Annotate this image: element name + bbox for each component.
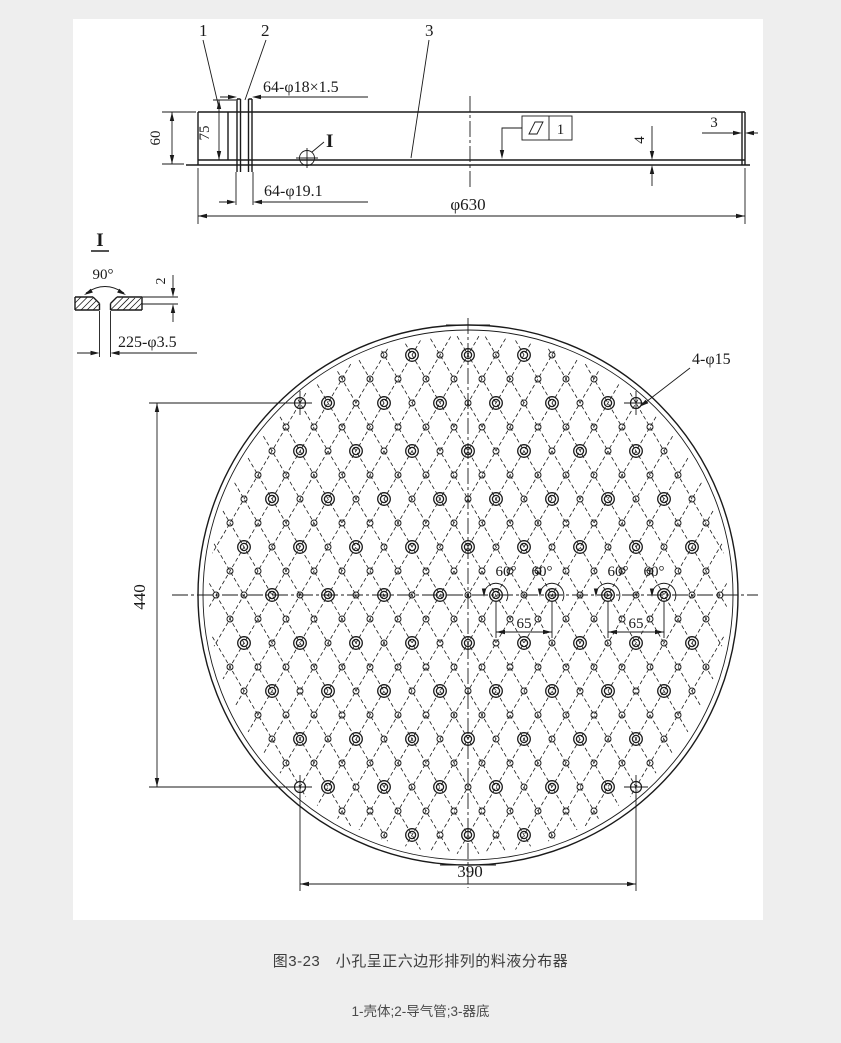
dim-height-text: 440 xyxy=(130,584,149,610)
small-hole xyxy=(339,712,345,718)
large-hole-inner xyxy=(436,783,443,790)
detail-mark-text: I xyxy=(326,131,333,152)
large-hole xyxy=(574,541,587,554)
lattice-line xyxy=(485,483,701,854)
small-hole xyxy=(283,424,289,430)
small-hole xyxy=(353,784,359,790)
dim-countersink-depth-text: 2 xyxy=(154,278,169,285)
tolerance-datum-text: 1 xyxy=(557,122,565,138)
small-hole xyxy=(577,784,583,790)
dim-small-holes-text: 225-φ3.5 xyxy=(118,334,177,351)
arrowhead xyxy=(111,351,120,355)
large-hole-inner xyxy=(408,639,415,646)
dim-bottom-thickness-text: 4 xyxy=(632,136,648,144)
page: 1 2 3 64-φ18×1.5 64-φ19.1 xyxy=(0,0,841,1043)
hatch-line xyxy=(129,298,141,310)
hatch-line xyxy=(87,300,97,310)
part-label-2: 2 xyxy=(261,21,270,40)
lattice-line xyxy=(457,336,688,732)
tolerance-frame: 1 xyxy=(500,116,572,159)
lattice-line xyxy=(235,483,451,854)
large-hole xyxy=(434,781,447,794)
dim-small-holes: 225-φ3.5 xyxy=(77,311,197,357)
large-hole-inner xyxy=(352,543,359,550)
arrowhead xyxy=(252,95,261,99)
arrowhead xyxy=(171,288,175,297)
small-hole xyxy=(535,376,541,382)
hatch-line xyxy=(135,303,142,310)
technical-drawing: 1 2 3 64-φ18×1.5 64-φ19.1 xyxy=(0,0,841,1043)
lattice-line xyxy=(317,360,577,805)
dim-rim-height-text: 60 xyxy=(148,131,164,146)
small-hole xyxy=(507,664,513,670)
lattice-line xyxy=(235,337,451,708)
lattice-line xyxy=(223,340,421,679)
small-hole xyxy=(563,808,569,814)
hatch-line xyxy=(75,297,88,310)
small-hole xyxy=(297,688,303,694)
lattice-line xyxy=(516,340,714,679)
dim-corner-holes-text: 4-φ15 xyxy=(692,351,731,368)
detail-view: I 90° xyxy=(75,230,197,357)
lattice-line xyxy=(223,511,421,850)
arrowhead xyxy=(745,131,754,135)
dim-hole-spec: 64-φ19.1 xyxy=(219,172,368,205)
arrowhead xyxy=(300,882,309,886)
lattice-line xyxy=(548,349,722,646)
detail-mark-leader xyxy=(312,142,324,152)
large-hole xyxy=(322,781,335,794)
part-label-3: 3 xyxy=(425,21,434,40)
small-hole xyxy=(493,832,499,838)
large-hole xyxy=(602,781,615,794)
small-hole xyxy=(423,568,429,574)
small-hole xyxy=(507,712,513,718)
hatch-line xyxy=(93,304,100,311)
arrowhead xyxy=(538,589,542,598)
angle-label: 60° xyxy=(644,564,665,580)
small-hole xyxy=(591,712,597,718)
arrowhead xyxy=(155,403,159,412)
arrowhead xyxy=(227,200,236,204)
small-hole xyxy=(479,808,485,814)
arrowhead xyxy=(171,304,175,313)
detail-mark: I xyxy=(296,131,333,168)
tolerance-frame-box xyxy=(522,116,572,140)
arrowhead xyxy=(543,630,552,634)
dim-countersink-depth: 2 xyxy=(142,275,178,322)
lattice-line xyxy=(214,349,388,646)
small-hole xyxy=(367,808,373,814)
small-hole xyxy=(437,640,443,646)
part-label-1: 1 xyxy=(199,21,208,40)
angle-label: 60° xyxy=(496,564,517,580)
hatch-line xyxy=(117,298,129,310)
arrowhead xyxy=(650,151,654,160)
dim-tube-height: 75 xyxy=(197,100,236,160)
dim-pitch-left-text: 65 xyxy=(517,616,532,632)
dim-width-text: 390 xyxy=(457,862,483,881)
small-hole xyxy=(395,424,401,430)
plan-view: 440 390 4-φ15 60° 60° 60° 60° xyxy=(130,318,758,891)
arrowhead xyxy=(170,112,174,121)
angle-label: 60° xyxy=(532,564,553,580)
dim-tube-height-text: 75 xyxy=(197,126,213,141)
ext-line xyxy=(142,297,178,304)
hatch-line xyxy=(123,298,135,310)
dim-rim-height: 60 xyxy=(148,112,196,164)
small-hole xyxy=(493,640,499,646)
arrowhead xyxy=(228,95,237,99)
hatch-line xyxy=(81,298,93,310)
ext-line xyxy=(100,311,111,357)
dim-countersink-angle-text: 90° xyxy=(93,267,114,283)
side-view: 1 2 3 64-φ18×1.5 64-φ19.1 xyxy=(148,21,758,224)
tolerance-leader xyxy=(502,128,522,151)
large-hole xyxy=(350,541,363,554)
small-hole xyxy=(647,424,653,430)
large-hole-inner xyxy=(576,543,583,550)
arrowhead xyxy=(594,589,598,598)
leader-line xyxy=(646,368,690,402)
dim-pitch-left: 65 xyxy=(496,602,552,638)
small-hole xyxy=(423,664,429,670)
detail-title: I xyxy=(96,230,103,251)
small-hole xyxy=(535,424,541,430)
hatch-lines xyxy=(75,297,142,310)
large-hole-inner xyxy=(492,783,499,790)
dim-tube-spec-text: 64-φ18×1.5 xyxy=(263,79,339,96)
lattice-line xyxy=(214,544,388,841)
ext-line xyxy=(162,112,196,164)
lattice-line xyxy=(248,336,479,732)
arrowhead xyxy=(217,151,221,160)
flatness-symbol-icon xyxy=(529,122,543,134)
large-hole-inner xyxy=(324,783,331,790)
large-hole-inner xyxy=(604,783,611,790)
large-hole xyxy=(490,781,503,794)
ext-line xyxy=(236,172,253,205)
part-label-3-leader xyxy=(411,40,429,158)
large-hole xyxy=(406,637,419,650)
small-hole xyxy=(633,688,639,694)
dim-pitch-right: 65 xyxy=(608,602,664,638)
dim-bottom-thickness: 4 xyxy=(632,126,654,186)
small-hole xyxy=(451,808,457,814)
lattice-line xyxy=(248,458,479,854)
lattice-line xyxy=(516,511,714,850)
arrowhead xyxy=(170,155,174,164)
arrowhead xyxy=(482,589,486,598)
hatch-line xyxy=(111,298,123,310)
lattice-line xyxy=(457,458,688,854)
small-hole xyxy=(339,520,345,526)
arrowhead xyxy=(155,778,159,787)
arrowhead xyxy=(733,131,742,135)
hatch-line xyxy=(75,297,81,303)
dim-wall-thickness: 3 xyxy=(702,115,758,135)
dim-pitch-right-text: 65 xyxy=(629,616,644,632)
small-hole xyxy=(675,664,681,670)
large-hole-inner xyxy=(520,639,527,646)
right-wall xyxy=(742,112,745,165)
small-hole xyxy=(367,520,373,526)
arrowhead xyxy=(91,351,100,355)
lattice-line xyxy=(485,337,701,708)
small-hole xyxy=(423,712,429,718)
figure-legend: 1-壳体;2-导气管;3-器底 xyxy=(0,1000,841,1020)
small-hole xyxy=(395,376,401,382)
part-label-1-leader xyxy=(203,40,219,108)
angle-label: 60° xyxy=(608,564,629,580)
arrowhead xyxy=(650,165,654,174)
arrowhead xyxy=(736,214,745,218)
arrowhead xyxy=(198,214,207,218)
arrowhead xyxy=(253,200,262,204)
small-hole xyxy=(563,520,569,526)
dim-hole-spec-text: 64-φ19.1 xyxy=(264,183,323,200)
arrowhead xyxy=(608,630,617,634)
arrowhead xyxy=(500,150,504,159)
arrowhead xyxy=(627,882,636,886)
lattice-line xyxy=(359,360,619,805)
angle-labels: 60° 60° 60° 60° xyxy=(496,564,665,580)
dim-tube-spec: 64-φ18×1.5 xyxy=(220,79,368,99)
large-hole xyxy=(518,637,531,650)
small-hole xyxy=(591,520,597,526)
gas-tube xyxy=(237,99,252,172)
dim-countersink-angle: 90° xyxy=(84,267,126,295)
arrowhead xyxy=(496,630,505,634)
small-hole xyxy=(437,832,443,838)
lattice-line xyxy=(548,544,722,841)
dim-outer-diameter-text: φ630 xyxy=(450,195,485,214)
small-hole xyxy=(255,664,261,670)
figure-caption: 图3-23 小孔呈正六边形排列的料液分布器 xyxy=(0,950,841,971)
arrowhead xyxy=(655,630,664,634)
dim-wall-thickness-text: 3 xyxy=(710,115,718,131)
arrowhead xyxy=(650,589,654,598)
